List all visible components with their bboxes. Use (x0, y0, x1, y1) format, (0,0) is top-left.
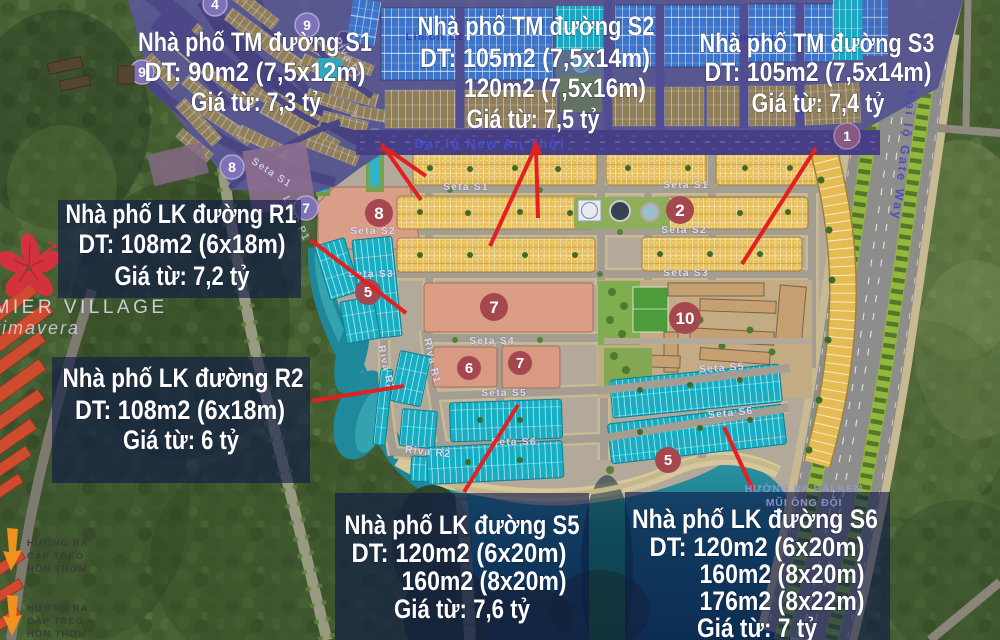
svg-text:Seta S1: Seta S1 (443, 181, 489, 193)
svg-text:DT: 105m2 (7,5x14m): DT: 105m2 (7,5x14m) (420, 43, 650, 73)
svg-text:Nhà phố LK đường S5: Nhà phố LK đường S5 (345, 510, 580, 540)
svg-text:Seta S4: Seta S4 (469, 335, 515, 347)
svg-text:160m2 (8x20m): 160m2 (8x20m) (402, 566, 567, 596)
svg-text:8: 8 (374, 204, 383, 223)
svg-text:8: 8 (228, 159, 236, 175)
svg-text:DT: 108m2 (6x18m): DT: 108m2 (6x18m) (79, 229, 286, 259)
svg-text:4: 4 (211, 0, 219, 12)
svg-text:Nhà phố LK đường R1: Nhà phố LK đường R1 (66, 199, 297, 229)
svg-text:CÁP TREO: CÁP TREO (27, 551, 84, 562)
svg-text:DT: 120m2 (6x20m): DT: 120m2 (6x20m) (352, 538, 567, 568)
svg-text:Giá từ: 7,4 tỷ: Giá từ: 7,4 tỷ (752, 88, 885, 118)
svg-text:Giá từ: 7,3 tỷ: Giá từ: 7,3 tỷ (191, 87, 321, 117)
svg-text:Nhà phố TM đường S1: Nhà phố TM đường S1 (138, 27, 372, 57)
svg-text:7: 7 (489, 298, 498, 317)
svg-text:120m2 (7,5x16m): 120m2 (7,5x16m) (464, 73, 646, 103)
svg-text:Nhà phố TM đường S3: Nhà phố TM đường S3 (700, 28, 935, 58)
svg-text:Seta S3: Seta S3 (663, 267, 709, 279)
svg-text:7: 7 (302, 200, 310, 216)
svg-text:MŨI ÔNG ĐỘI: MŨI ÔNG ĐỘI (766, 496, 842, 509)
svg-text:HÒN THƠM: HÒN THƠM (27, 563, 87, 575)
svg-text:DT: 108m2 (6x18m): DT: 108m2 (6x18m) (75, 395, 285, 425)
svg-text:2: 2 (675, 201, 684, 220)
svg-text:Giá từ: 7,2 tỷ: Giá từ: 7,2 tỷ (115, 261, 250, 291)
svg-text:Đại lộ New An Thới: Đại lộ New An Thới (415, 136, 566, 151)
svg-text:Nhà phố TM đường S2: Nhà phố TM đường S2 (418, 11, 655, 41)
svg-text:160m2 (8x20m): 160m2 (8x20m) (700, 559, 865, 589)
svg-text:Nhà phố LK đường R2: Nhà phố LK đường R2 (63, 363, 304, 393)
svg-text:Seta S2: Seta S2 (661, 224, 707, 236)
svg-text:Giá từ: 7 tỷ: Giá từ: 7 tỷ (697, 613, 817, 640)
svg-text:DT: 105m2 (7,5x14m): DT: 105m2 (7,5x14m) (705, 57, 932, 87)
svg-text:Seta S1: Seta S1 (663, 179, 709, 191)
svg-text:176m2 (8x22m): 176m2 (8x22m) (700, 586, 865, 616)
svg-text:7: 7 (516, 355, 524, 372)
svg-text:HÒN THƠM: HÒN THƠM (27, 628, 87, 640)
svg-text:10: 10 (676, 309, 695, 328)
svg-text:HƯỚNG RA BÃI KEM: HƯỚNG RA BÃI KEM (745, 482, 864, 495)
svg-text:PREMIER VILLAGE: PREMIER VILLAGE (0, 297, 168, 318)
svg-text:CÁP TREO: CÁP TREO (27, 616, 84, 627)
svg-text:1: 1 (843, 128, 851, 144)
svg-text:DT: 120m2 (6x20m): DT: 120m2 (6x20m) (650, 532, 865, 562)
svg-text:Giá từ: 7,6 tỷ: Giá từ: 7,6 tỷ (394, 594, 530, 624)
svg-text:Giá từ: 6 tỷ: Giá từ: 6 tỷ (123, 425, 239, 455)
svg-text:DT: 90m2 (7,5x12m): DT: 90m2 (7,5x12m) (145, 57, 366, 87)
svg-text:6: 6 (465, 360, 473, 377)
svg-text:Primavera: Primavera (0, 318, 80, 338)
svg-text:Seta S5: Seta S5 (481, 387, 527, 399)
svg-text:Seta S2: Seta S2 (350, 225, 396, 237)
svg-text:5: 5 (664, 452, 672, 469)
svg-text:Giá từ: 7,5 tỷ: Giá từ: 7,5 tỷ (467, 104, 600, 134)
svg-text:HƯỚNG RA: HƯỚNG RA (27, 602, 88, 614)
svg-text:HƯỚNG RA: HƯỚNG RA (27, 537, 88, 549)
